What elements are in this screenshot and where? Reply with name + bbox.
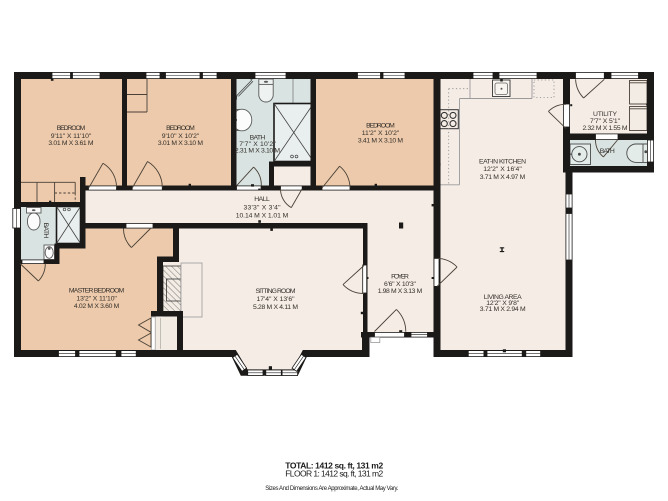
svg-text:3.71 M X 2.94 M: 3.71 M X 2.94 M (480, 306, 526, 313)
svg-text:2.31 M X 3.10 M: 2.31 M X 3.10 M (235, 147, 281, 154)
svg-text:BATH: BATH (42, 223, 49, 239)
svg-text:12'2" X 16'4": 12'2" X 16'4" (483, 166, 522, 173)
svg-text:MASTER BEDROOM: MASTER BEDROOM (69, 288, 125, 295)
svg-text:EAT-IN KITCHEN: EAT-IN KITCHEN (479, 159, 526, 166)
svg-text:7'7" X 5'1": 7'7" X 5'1" (590, 118, 621, 125)
svg-text:13'2" X 11'10": 13'2" X 11'10" (76, 295, 117, 302)
svg-text:BATH: BATH (600, 148, 615, 155)
svg-text:SITTING ROOM: SITTING ROOM (256, 288, 296, 295)
svg-text:1.98 M X 3.13 M: 1.98 M X 3.13 M (378, 288, 423, 295)
svg-text:FOYER: FOYER (391, 274, 409, 281)
svg-text:33'3" X 3'4": 33'3" X 3'4" (244, 205, 282, 212)
svg-text:3.71 M X 4.97 M: 3.71 M X 4.97 M (480, 174, 526, 181)
svg-text:4.02 M X 3.60 M: 4.02 M X 3.60 M (74, 303, 120, 310)
svg-text:BEDROOM: BEDROOM (57, 125, 86, 132)
svg-text:10.14 M X 1.01 M: 10.14 M X 1.01 M (236, 213, 289, 220)
svg-text:2.32 M X 1.55 M: 2.32 M X 1.55 M (583, 125, 628, 132)
svg-text:17'4" X 13'6": 17'4" X 13'6" (257, 296, 296, 303)
svg-text:BEDROOM: BEDROOM (366, 123, 395, 130)
svg-text:5.28 M X 4.11 M: 5.28 M X 4.11 M (253, 304, 298, 311)
svg-text:3.41 M X 3.10 M: 3.41 M X 3.10 M (358, 138, 404, 145)
svg-text:UTILITY: UTILITY (593, 111, 617, 118)
svg-text:11'2" X 10'2": 11'2" X 10'2" (362, 130, 400, 137)
svg-text:3.01 M X 3.10 M: 3.01 M X 3.10 M (158, 140, 204, 147)
svg-text:6'6" X 10'3": 6'6" X 10'3" (384, 281, 416, 288)
svg-text:Sizes And Dimensions Are Appro: Sizes And Dimensions Are Approximate, Ac… (265, 486, 398, 492)
svg-text:BEDROOM: BEDROOM (166, 125, 195, 132)
svg-text:HALL: HALL (254, 196, 270, 203)
svg-text:3.01 M X 3.61 M: 3.01 M X 3.61 M (48, 140, 94, 147)
svg-text:FLOOR 1: 1412 sq. ft, 131 m2: FLOOR 1: 1412 sq. ft, 131 m2 (285, 469, 383, 479)
